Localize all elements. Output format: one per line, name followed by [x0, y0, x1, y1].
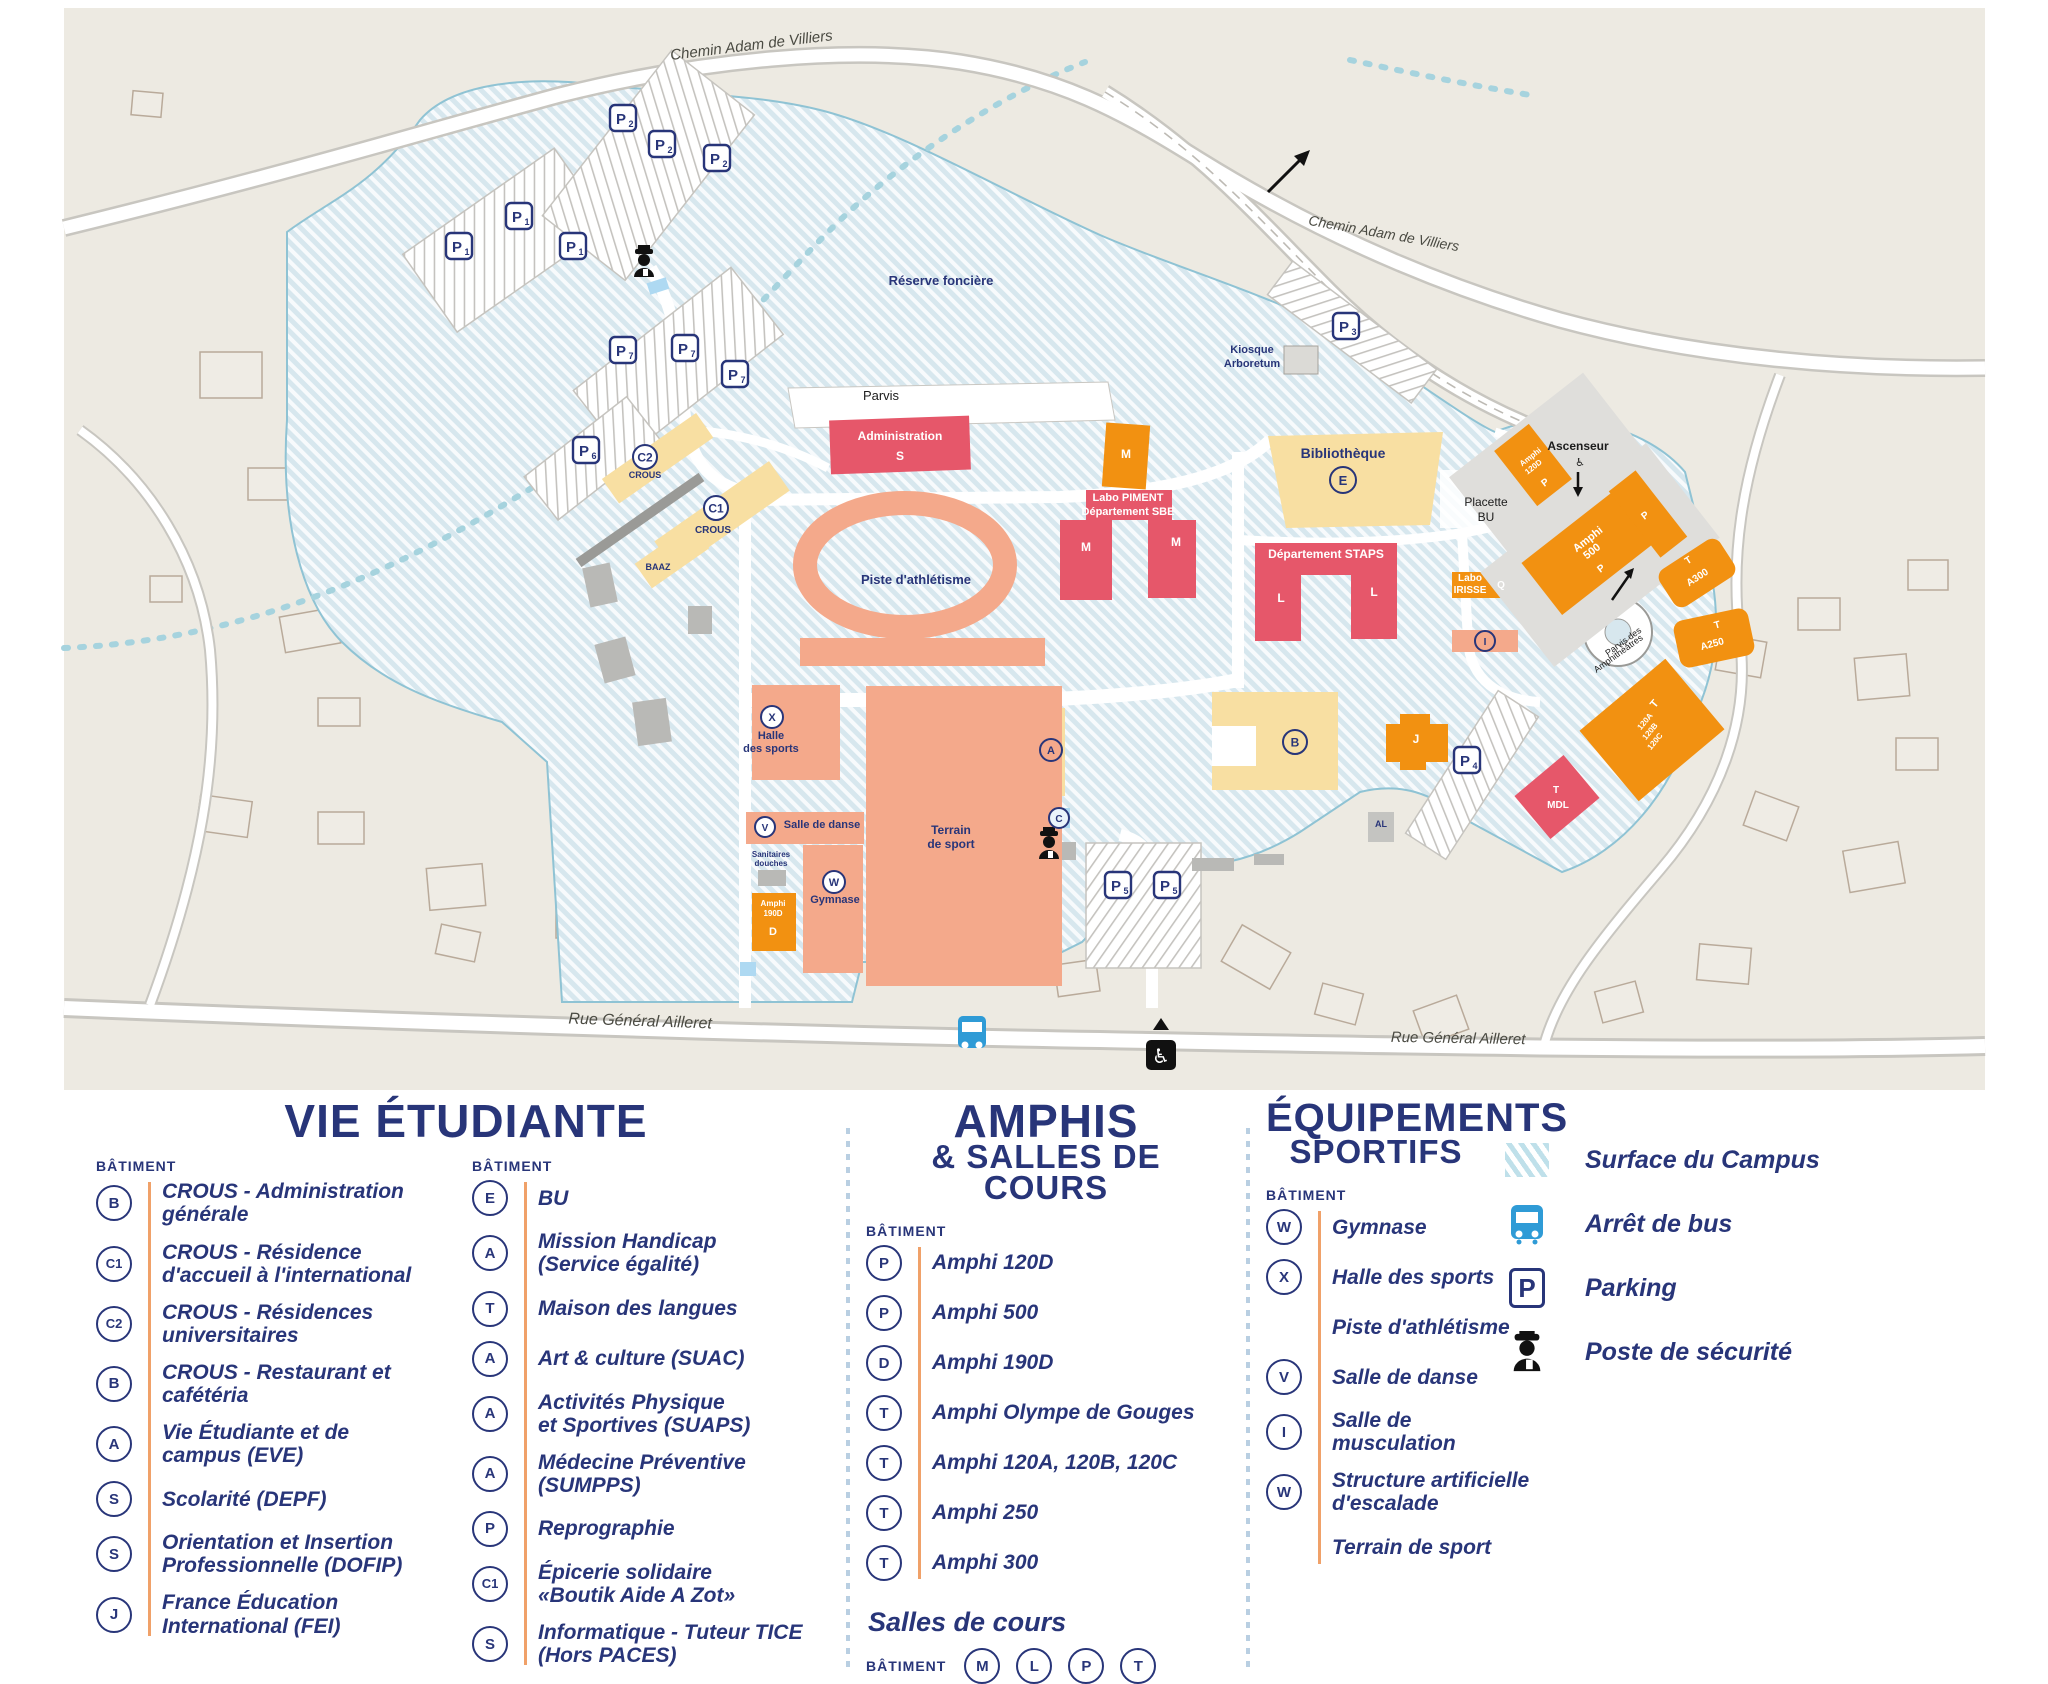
legend-item: ISalle de musculation [1266, 1409, 1566, 1455]
batiment-badge-B: B [96, 1185, 132, 1221]
parking-marker-P1: P1 [560, 233, 586, 259]
parking-marker-P6: P6 [573, 437, 599, 463]
batiment-badge-P: P [866, 1245, 902, 1281]
svg-text:5: 5 [1172, 886, 1177, 896]
svg-text:4: 4 [1472, 761, 1477, 771]
svg-text:C: C [1055, 814, 1062, 825]
svg-text:P: P [512, 209, 522, 226]
piste-apron [800, 638, 1045, 666]
batiment-badge-A: A [472, 1396, 508, 1432]
map-label: Rue Général Ailleret [1391, 1029, 1527, 1048]
salles-de-cours-row: BÂTIMENT MLPT [866, 1648, 1226, 1684]
batiment-badge-P: P [472, 1511, 508, 1547]
svg-text:I: I [1484, 637, 1487, 648]
legend-item-label: Amphi 300 [932, 1551, 1038, 1574]
parking-marker-P2: P2 [649, 131, 675, 157]
batiment-badge-L: L [1016, 1648, 1052, 1684]
map-label: Salle de danse [784, 819, 860, 831]
legend-item: AMédecine Préventive (SUMPPS) [472, 1451, 832, 1497]
legend-item: TMaison des langues [472, 1291, 832, 1327]
map-label: Arboretum [1224, 358, 1280, 370]
legend-item: AMission Handicap (Service égalité) [472, 1230, 832, 1276]
parking-marker-P7: P7 [672, 335, 698, 361]
map-label: Département SBE [1082, 506, 1175, 518]
legend-item: DAmphi 190D [866, 1345, 1226, 1381]
svg-text:7: 7 [690, 349, 695, 359]
batiment-badge-J: J [96, 1597, 132, 1633]
legend-symbol-label: Poste de sécurité [1585, 1338, 1792, 1367]
bus-icon-wrap [1505, 1204, 1549, 1244]
map-label: Labo [1458, 573, 1482, 584]
legend-symbol-hatch: Surface du Campus [1505, 1140, 1820, 1180]
legend-item-label: CROUS - Résidences universitaires [162, 1301, 373, 1347]
svg-text:1: 1 [524, 217, 529, 227]
batiment-badge-P: P [1068, 1648, 1104, 1684]
svg-text:7: 7 [740, 375, 745, 385]
svg-text:P: P [655, 137, 665, 154]
legend-separator [1246, 1128, 1250, 1668]
svg-text:P: P [1160, 878, 1170, 895]
parking-marker-P2: P2 [704, 145, 730, 171]
building-administration [829, 416, 971, 475]
map-label: S [896, 449, 904, 463]
batiment-badge-E: E [472, 1180, 508, 1216]
batiment-badge-W: W [1266, 1474, 1302, 1510]
parking-marker-P1: P1 [506, 203, 532, 229]
legend-item: TAmphi 300 [866, 1545, 1226, 1581]
batiment-badge-C1: C1 [472, 1566, 508, 1602]
legend-item-label: Vie Étudiante et de campus (EVE) [162, 1421, 349, 1467]
section-title-amphis-1: AMPHIS [866, 1100, 1226, 1142]
batiment-badge-D: D [866, 1345, 902, 1381]
legend-item: AActivités Physique et Sportives (SUAPS) [472, 1391, 832, 1437]
svg-text:E: E [1339, 473, 1348, 488]
security-officer-icon [1507, 1331, 1547, 1373]
legend-item-label: Activités Physique et Sportives (SUAPS) [538, 1391, 750, 1437]
map-label: Parvis [863, 388, 900, 403]
map-label: M [1081, 540, 1091, 554]
legend-item: TAmphi 120A, 120B, 120C [866, 1445, 1226, 1481]
legend-item: C1CROUS - Résidence d'accueil à l'intern… [96, 1241, 426, 1287]
batiment-badge-S: S [472, 1626, 508, 1662]
legend-item-label: Gymnase [1332, 1216, 1427, 1239]
legend-item: WStructure artificielle d'escalade [1266, 1469, 1566, 1515]
building-gymnase [803, 845, 863, 973]
legend-item-label: Halle des sports [1332, 1266, 1494, 1289]
legend-item: AVie Étudiante et de campus (EVE) [96, 1421, 426, 1467]
map-label: Gymnase [810, 894, 860, 906]
legend-item-label: Amphi 120D [932, 1251, 1053, 1274]
batiment-badge-A: A [472, 1341, 508, 1377]
legend-item-label: Amphi 120A, 120B, 120C [932, 1451, 1177, 1474]
legend-symbols: Surface du CampusArrêt de busPParkingPos… [1505, 1140, 1820, 1372]
batiment-label: BÂTIMENT [472, 1158, 832, 1174]
legend-item-label: Médecine Préventive (SUMPPS) [538, 1451, 832, 1497]
legend-item-label: Orientation et Insertion Professionnelle… [162, 1531, 402, 1577]
batiment-label: BÂTIMENT [96, 1158, 426, 1174]
batiment-label: BÂTIMENT [866, 1223, 1226, 1239]
svg-text:V: V [762, 823, 769, 834]
legend-item: BCROUS - Administration générale [96, 1180, 426, 1226]
map-label: AL [1375, 819, 1387, 829]
svg-text:P: P [678, 341, 688, 358]
batiment-badge-P: P [866, 1295, 902, 1331]
map-label: Ascenseur [1547, 439, 1609, 453]
bus-stop-icon [958, 1016, 986, 1049]
batiment-badge-M: M [964, 1648, 1000, 1684]
svg-text:P: P [728, 367, 738, 384]
svg-text:6: 6 [591, 451, 596, 461]
section-title-amphis-2: & SALLES DE COURS [866, 1142, 1226, 1203]
svg-text:1: 1 [578, 247, 583, 257]
building-badge-X: X [761, 706, 783, 728]
svg-text:7: 7 [628, 351, 633, 361]
svg-text:P: P [710, 151, 720, 168]
batiment-badge-T: T [866, 1545, 902, 1581]
legend-item-label: Art & culture (SUAC) [538, 1347, 745, 1370]
batiment-badge-C2: C2 [96, 1306, 132, 1342]
map-label: Halle [758, 730, 784, 742]
legend-item: PAmphi 120D [866, 1245, 1226, 1281]
legend-item: PReprographie [472, 1511, 832, 1547]
kiosque-arboretum-building [1284, 346, 1318, 374]
section-title-equipements-1: ÉQUIPEMENTS [1266, 1100, 1486, 1137]
batiment-badge-T: T [1120, 1648, 1156, 1684]
svg-text:2: 2 [628, 119, 633, 129]
map-label: T [1553, 785, 1559, 796]
batiment-badge-empty [1266, 1309, 1302, 1345]
campus-map-page: { "colors":{"navy":"#283579","red":"#e65… [0, 0, 2048, 1644]
legend-item-label: Épicerie solidaire «Boutik Aide A Zot» [538, 1561, 735, 1607]
map-label: BAAZ [646, 562, 671, 572]
legend-symbol-label: Surface du Campus [1585, 1146, 1820, 1175]
parking-icon: P [1509, 1268, 1545, 1308]
hatch-icon-wrap [1505, 1140, 1549, 1180]
legend-item-label: Amphi 500 [932, 1301, 1038, 1324]
map-label: Amphi [761, 899, 786, 908]
salles-badges: MLPT [964, 1648, 1156, 1684]
legend-item-label: Salle de musculation [1332, 1409, 1456, 1455]
parking-marker-P3: P3 [1333, 313, 1359, 339]
building-badge-V: V [755, 817, 775, 837]
legend-item-label: Reprographie [538, 1517, 675, 1540]
svg-text:P: P [566, 239, 576, 256]
map-label: des sports [743, 743, 799, 755]
vie-items-col2: EBUAMission Handicap (Service égalité)TM… [472, 1180, 832, 1667]
svg-text:X: X [768, 712, 776, 724]
parking-marker-P1: P1 [446, 233, 472, 259]
legend-section-vie-etudiante: VIE ÉTUDIANTE BÂTIMENT BCROUS - Administ… [96, 1100, 836, 1667]
vie-items-col1: BCROUS - Administration généraleC1CROUS … [96, 1180, 426, 1637]
building-badge-W: W [823, 871, 845, 893]
svg-text:W: W [829, 877, 840, 889]
batiment-badge-A: A [472, 1235, 508, 1271]
map-label: M [1171, 535, 1181, 549]
svg-text:P: P [452, 239, 462, 256]
map-label: Labo PIMENT [1093, 492, 1164, 504]
map-label: 190D [763, 909, 782, 918]
legend-item: AArt & culture (SUAC) [472, 1341, 832, 1377]
legend-item: Terrain de sport [1266, 1530, 1566, 1566]
legend-item: BCROUS - Restaurant et cafétéria [96, 1361, 426, 1407]
campus-map-svg: ♿ Chemin Adam de VilliersChemin Adam de … [0, 0, 2048, 1100]
legend-item: TAmphi Olympe de Gouges [866, 1395, 1226, 1431]
map-label: Placette [1464, 495, 1508, 509]
legend-item-label: Mission Handicap (Service égalité) [538, 1230, 717, 1276]
bus-icon [1508, 1203, 1546, 1245]
parking-marker-P7: P7 [722, 361, 748, 387]
batiment-badge-C1: C1 [96, 1246, 132, 1282]
legend-symbol-label: Arrêt de bus [1585, 1210, 1732, 1239]
legend-item: TAmphi 250 [866, 1495, 1226, 1531]
parking-marker-P2: P2 [610, 105, 636, 131]
batiment-badge-T: T [472, 1291, 508, 1327]
svg-text:5: 5 [1123, 886, 1128, 896]
batiment-badge-B: B [96, 1366, 132, 1402]
map-label: de sport [927, 837, 974, 851]
handicap-icon: ♿ [1146, 1040, 1176, 1070]
parking-marker-P4: P4 [1454, 747, 1480, 773]
legend-item: PAmphi 500 [866, 1295, 1226, 1331]
legend-item-label: Scolarité (DEPF) [162, 1488, 327, 1511]
legend-item-label: Maison des langues [538, 1297, 738, 1320]
map-label: douches [755, 859, 788, 868]
svg-text:C2: C2 [637, 451, 653, 465]
map-label: Département STAPS [1268, 547, 1384, 561]
batiment-badge-A: A [472, 1456, 508, 1492]
parking-icon-wrap: P [1505, 1268, 1549, 1308]
map-label: Terrain [931, 823, 971, 837]
svg-text:A: A [1047, 745, 1055, 757]
legend-item-label: Amphi Olympe de Gouges [932, 1401, 1195, 1424]
map-label: L [1277, 591, 1284, 605]
legend-item-label: CROUS - Administration générale [162, 1180, 404, 1226]
map-label: Bibliothèque [1301, 445, 1386, 461]
svg-text:2: 2 [667, 145, 672, 155]
map-label: Sanitaires [752, 850, 791, 859]
svg-text:P: P [1111, 878, 1121, 895]
campus-map: ♿ Chemin Adam de VilliersChemin Adam de … [0, 0, 2048, 1100]
legend-item-label: CROUS - Restaurant et cafétéria [162, 1361, 391, 1407]
legend-section-equipements: ÉQUIPEMENTS SPORTIFS BÂTIMENT WGymnaseXH… [1266, 1100, 1486, 1566]
officer-icon-wrap [1505, 1332, 1549, 1372]
batiment-badge-S: S [96, 1536, 132, 1572]
batiment-badge-T: T [866, 1395, 902, 1431]
legend-symbol-label: Parking [1585, 1274, 1677, 1303]
svg-text:B: B [1291, 736, 1300, 750]
batiment-badge-I: I [1266, 1414, 1302, 1450]
building-badge-C: C [1049, 808, 1069, 828]
legend-item: C1Épicerie solidaire «Boutik Aide A Zot» [472, 1561, 832, 1607]
legend-item: SScolarité (DEPF) [96, 1481, 426, 1517]
svg-text:P: P [616, 343, 626, 360]
svg-text:3: 3 [1351, 327, 1356, 337]
svg-text:1: 1 [464, 247, 469, 257]
svg-text:P: P [579, 443, 589, 460]
map-label: MDL [1547, 800, 1569, 811]
batiment-badge-T: T [866, 1495, 902, 1531]
legend-item-label: Structure artificielle d'escalade [1332, 1469, 1529, 1515]
legend-symbol-bus: Arrêt de bus [1505, 1204, 1820, 1244]
svg-text:P: P [1460, 753, 1470, 770]
batiment-badge-A: A [96, 1426, 132, 1462]
batiment-badge-T: T [866, 1445, 902, 1481]
map-label: Réserve foncière [889, 273, 994, 288]
svg-text:P: P [1339, 319, 1349, 336]
map-label: IRISSE [1454, 585, 1487, 596]
map-label: BU [1478, 510, 1495, 524]
legend-item: SInformatique - Tuteur TICE (Hors PACES) [472, 1621, 832, 1667]
legend-item: EBU [472, 1180, 832, 1216]
legend-item: SOrientation et Insertion Professionnell… [96, 1531, 426, 1577]
building-b-courtyard [1212, 726, 1256, 766]
batiment-badge-X: X [1266, 1259, 1302, 1295]
map-label: ♿ [1575, 457, 1585, 469]
legend-item-label: France Éducation International (FEI) [162, 1591, 341, 1637]
legend-item-label: Amphi 250 [932, 1501, 1038, 1524]
batiment-badge-S: S [96, 1481, 132, 1517]
batiment-badge-V: V [1266, 1359, 1302, 1395]
legend-item-label: Piste d'athlétisme [1332, 1316, 1510, 1339]
batiment-label: BÂTIMENT [866, 1658, 946, 1674]
map-label: J [1413, 732, 1420, 746]
legend-item-label: Salle de danse [1332, 1366, 1478, 1389]
campus-surface-swatch [1505, 1143, 1549, 1177]
batiment-label: BÂTIMENT [1266, 1187, 1486, 1203]
legend: VIE ÉTUDIANTE BÂTIMENT BCROUS - Administ… [0, 1100, 2048, 1644]
amphi-items: PAmphi 120DPAmphi 500DAmphi 190DTAmphi O… [866, 1245, 1226, 1581]
legend-item-label: CROUS - Résidence d'accueil à l'internat… [162, 1241, 411, 1287]
svg-text:2: 2 [722, 159, 727, 169]
building-badge-C2: C2 [633, 445, 657, 469]
legend-section-amphis: AMPHIS & SALLES DE COURS BÂTIMENT PAmphi… [866, 1100, 1226, 1684]
legend-item-label: Informatique - Tuteur TICE (Hors PACES) [538, 1621, 802, 1667]
map-label: Administration [858, 429, 943, 443]
map-label: CROUS [629, 470, 662, 480]
map-label: CROUS [695, 525, 731, 536]
batiment-badge-W: W [1266, 1209, 1302, 1245]
map-label: Kiosque [1230, 344, 1273, 356]
legend-item-label: Amphi 190D [932, 1351, 1053, 1374]
batiment-badge-empty [1266, 1530, 1302, 1566]
svg-text:C1: C1 [708, 502, 724, 516]
legend-item-label: Terrain de sport [1332, 1536, 1491, 1559]
legend-item-label: BU [538, 1187, 568, 1210]
section-title-equipements-2: SPORTIFS [1266, 1137, 1486, 1167]
legend-item: JFrance Éducation International (FEI) [96, 1591, 426, 1637]
map-label: Piste d'athlétisme [861, 572, 971, 587]
legend-symbol-officer: Poste de sécurité [1505, 1332, 1820, 1372]
salles-de-cours-heading: Salles de cours [868, 1607, 1226, 1638]
map-label: M [1121, 447, 1131, 461]
map-label: L [1370, 585, 1377, 599]
legend-separator [846, 1128, 850, 1668]
building-badge-C1: C1 [704, 496, 728, 520]
legend-symbol-parking: PParking [1505, 1268, 1820, 1308]
svg-text:P: P [616, 111, 626, 128]
map-label: Q [1497, 580, 1505, 591]
parking-marker-P5: P5 [1105, 872, 1131, 898]
parking-marker-P7: P7 [610, 337, 636, 363]
map-label: D [769, 926, 777, 938]
svg-text:♿: ♿ [1152, 1044, 1170, 1068]
legend-item: C2CROUS - Résidences universitaires [96, 1301, 426, 1347]
parking-marker-P5: P5 [1154, 872, 1180, 898]
section-title-vie-etudiante: VIE ÉTUDIANTE [96, 1100, 836, 1142]
